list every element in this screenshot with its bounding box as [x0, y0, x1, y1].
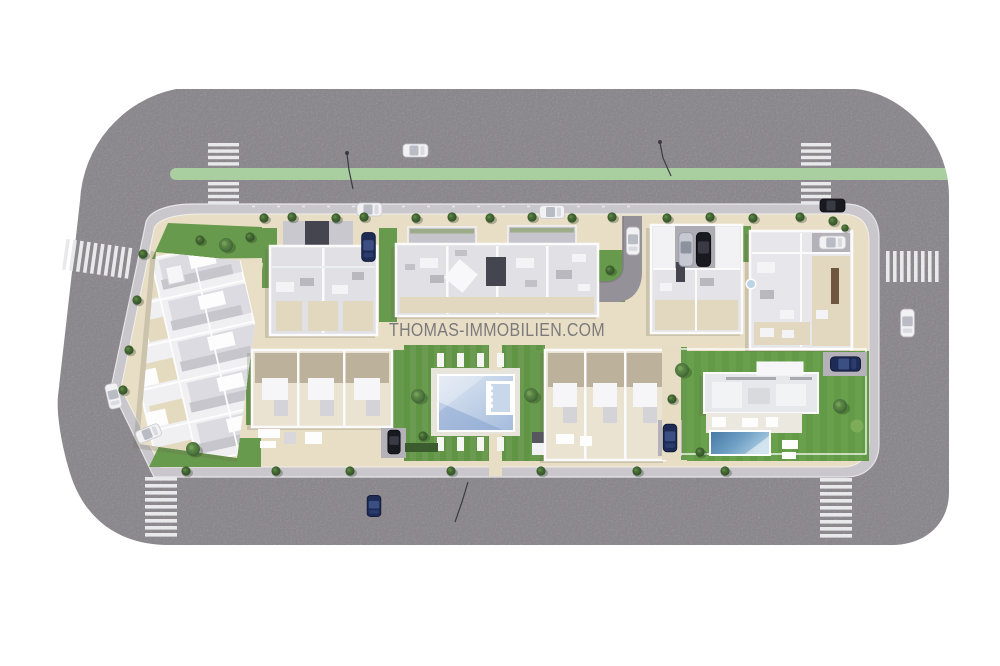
svg-text:THOMAS-IMMOBILIEN.COM: THOMAS-IMMOBILIEN.COM: [389, 320, 605, 340]
